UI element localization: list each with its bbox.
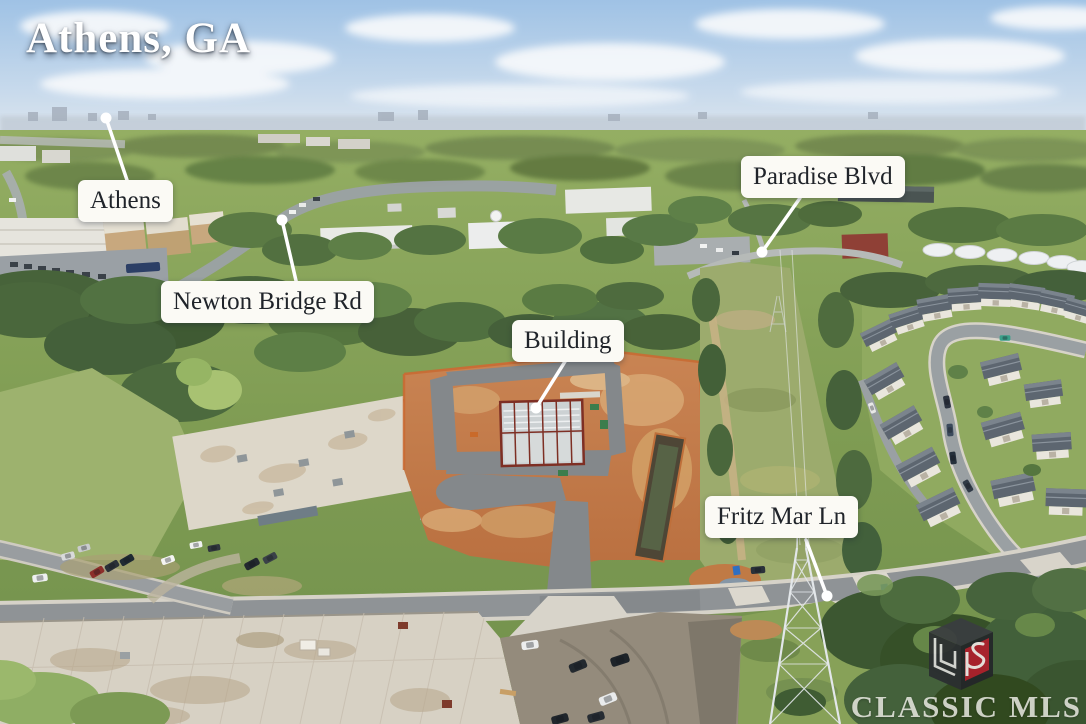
label-newton-bridge-rd-text: Newton Bridge Rd [173, 288, 362, 315]
classic-mls-logo-icon [929, 618, 993, 692]
label-fritz-mar-ln: Fritz Mar Ln [705, 496, 858, 538]
label-newton-bridge-rd: Newton Bridge Rd [161, 281, 374, 323]
photo-title: Athens, GA [26, 14, 251, 63]
label-athens-text: Athens [90, 187, 161, 214]
watermark: CLASSIC MLS [851, 618, 1082, 722]
label-building-text: Building [524, 327, 612, 354]
steel-frame-building [500, 400, 584, 466]
watermark-text: CLASSIC MLS [851, 692, 1082, 722]
label-fritz-mar-ln-text: Fritz Mar Ln [717, 503, 846, 530]
industrial-roof [0, 612, 520, 724]
label-paradise-blvd: Paradise Blvd [741, 156, 905, 198]
label-building: Building [512, 320, 624, 362]
aerial-photo: Athens, GA Athens Newton Bridge Rd Parad… [0, 0, 1086, 724]
label-paradise-blvd-text: Paradise Blvd [753, 163, 893, 190]
label-athens: Athens [78, 180, 173, 222]
aerial-scene [0, 0, 1086, 724]
